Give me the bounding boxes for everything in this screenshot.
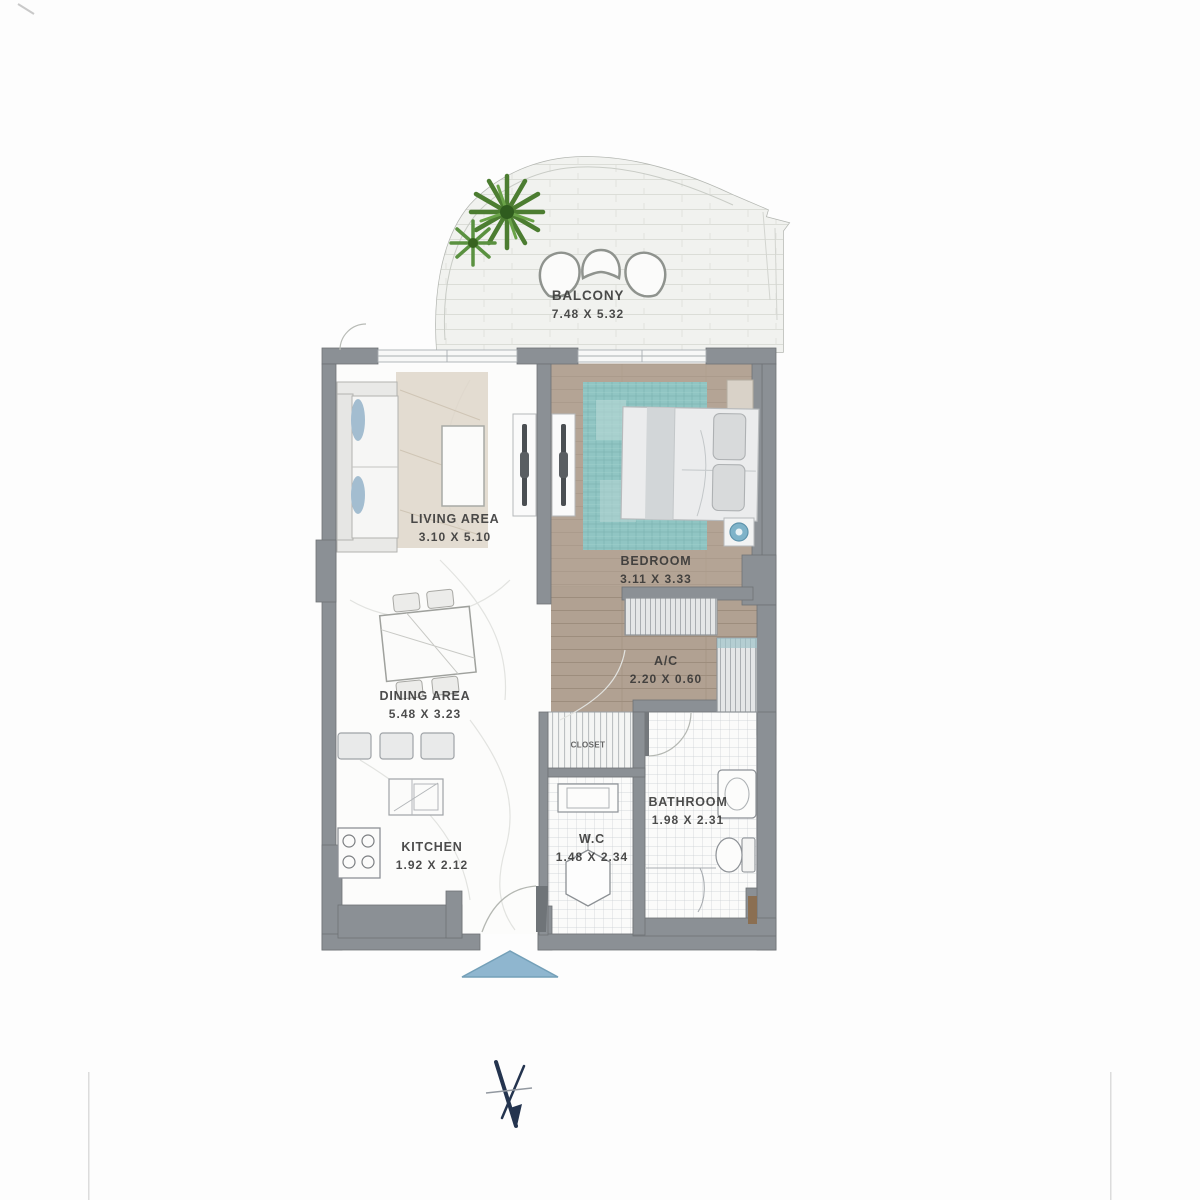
room-label-living: LIVING AREA 3.10 X 5.10 xyxy=(411,510,500,546)
room-dims: 3.11 X 3.33 xyxy=(620,570,692,588)
ac-unit-hatched xyxy=(717,638,757,712)
kitchen-cabinet xyxy=(380,733,413,759)
bathroom-niche xyxy=(748,896,757,924)
kitchen-cabinet xyxy=(338,733,371,759)
room-dims: 3.10 X 5.10 xyxy=(411,528,500,546)
wc-vanity xyxy=(558,784,618,812)
bed xyxy=(621,407,759,521)
room-label-balcony: BALCONY 7.48 X 5.32 xyxy=(552,287,624,323)
room-label-kitchen: KITCHEN 1.92 X 2.12 xyxy=(396,838,468,874)
room-name: BEDROOM xyxy=(621,554,692,568)
room-dims: 1.98 X 2.31 xyxy=(648,811,727,829)
sofa-cushion xyxy=(351,399,365,441)
floor-plan-drawing xyxy=(0,0,1200,1200)
room-label-dining: DINING AREA 5.48 X 3.23 xyxy=(380,687,471,723)
balcony-door-arc xyxy=(340,324,366,350)
entry-door-leaf xyxy=(536,886,548,932)
wardrobe-hatched xyxy=(625,598,717,635)
room-label-closet: CLOSET xyxy=(571,741,606,750)
room-dims: 1.92 X 2.12 xyxy=(396,856,468,874)
sofa xyxy=(337,382,398,552)
tv-unit-bedroom xyxy=(552,414,575,516)
tv-unit-living xyxy=(513,414,536,516)
room-name: LIVING AREA xyxy=(411,512,500,526)
room-label-wc: W.C 1.48 X 2.34 xyxy=(556,830,628,866)
room-name: BALCONY xyxy=(552,288,624,303)
nightstand xyxy=(727,380,753,412)
sofa-cushion xyxy=(351,476,365,514)
kitchen-counter xyxy=(389,779,443,815)
bedside-stool xyxy=(724,518,754,546)
coffee-table xyxy=(442,426,484,506)
room-label-bathroom: BATHROOM 1.98 X 2.31 xyxy=(648,793,727,829)
room-label-bedroom: BEDROOM 3.11 X 3.33 xyxy=(620,552,692,588)
kitchen-cabinet xyxy=(421,733,454,759)
room-dims: 5.48 X 3.23 xyxy=(380,705,471,723)
room-name: DINING AREA xyxy=(380,689,471,703)
room-name: KITCHEN xyxy=(401,840,462,854)
room-dims: 2.20 X 0.60 xyxy=(630,670,702,688)
pillow xyxy=(713,413,746,460)
toilet-icon xyxy=(716,838,755,872)
floor-plan-page: BALCONY 7.48 X 5.32 LIVING AREA 3.10 X 5… xyxy=(0,0,1200,1200)
pillow xyxy=(712,464,745,511)
room-name: BATHROOM xyxy=(648,795,727,809)
room-name: A/C xyxy=(654,654,678,668)
room-name: W.C xyxy=(579,832,605,846)
room-label-ac: A/C 2.20 X 0.60 xyxy=(630,652,702,688)
dining-chair xyxy=(393,593,421,613)
north-arrow-icon xyxy=(486,1062,532,1126)
entry-arrow-icon xyxy=(462,951,558,977)
room-dims: 7.48 X 5.32 xyxy=(552,305,624,323)
room-name: CLOSET xyxy=(571,741,606,750)
stove xyxy=(338,828,380,878)
room-dims: 1.48 X 2.34 xyxy=(556,848,628,866)
dining-chair xyxy=(426,589,454,609)
bedroom-area xyxy=(583,380,759,550)
